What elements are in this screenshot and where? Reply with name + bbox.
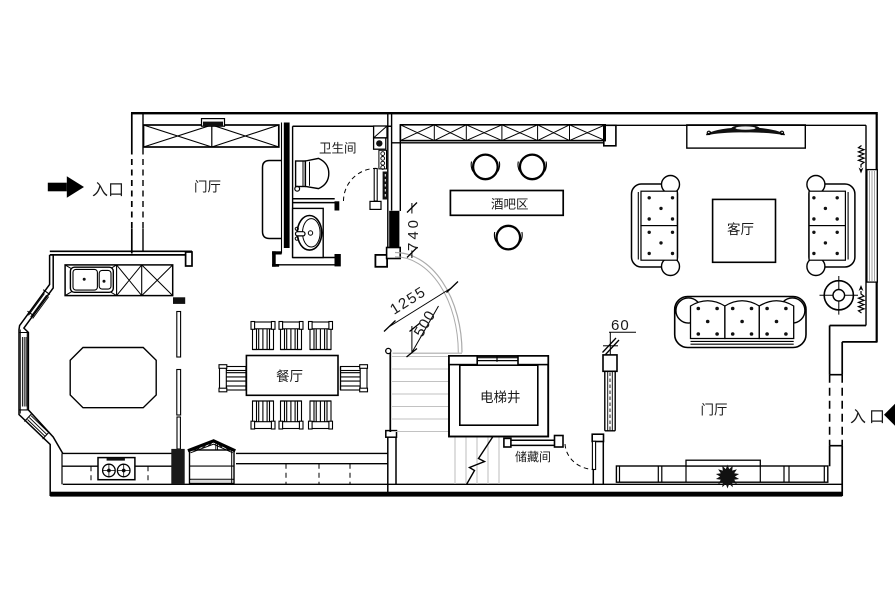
svg-text:客厅: 客厅 (727, 221, 754, 237)
svg-text:入口: 入口 (92, 182, 124, 199)
svg-text:酒吧区: 酒吧区 (491, 198, 529, 212)
svg-text:门厅: 门厅 (701, 403, 728, 418)
svg-text:门厅: 门厅 (194, 180, 221, 195)
svg-text:卫生间: 卫生间 (319, 142, 357, 156)
svg-text:740: 740 (405, 217, 422, 251)
svg-text:餐厅: 餐厅 (276, 369, 303, 384)
svg-text:电梯井: 电梯井 (480, 390, 521, 405)
svg-text:储藏间: 储藏间 (515, 449, 551, 464)
svg-text:60: 60 (611, 317, 630, 334)
svg-text:入口: 入口 (850, 409, 888, 426)
